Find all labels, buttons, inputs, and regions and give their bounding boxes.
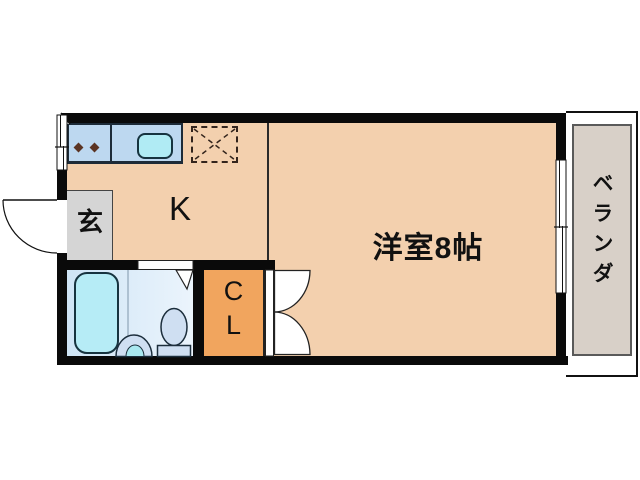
wall-bottom: [57, 356, 568, 365]
wall-interior: [57, 260, 275, 270]
wall-top: [57, 113, 566, 123]
kitchen-label: K: [150, 190, 210, 228]
wall-bathroom-right: [193, 270, 204, 356]
closet-label-line1: C: [204, 274, 263, 308]
entrance-label: 玄: [67, 202, 113, 239]
main-room-label: 洋室8帖: [328, 223, 528, 267]
floor-plan: 玄 K 洋室8帖 C L ベランダ: [0, 0, 640, 480]
kitchen-sink-icon: [137, 133, 173, 159]
wall-left: [57, 113, 67, 365]
kitchen-room-boundary-line: [267, 123, 269, 260]
closet-label-line2: L: [204, 308, 263, 342]
refrigerator-placeholder-icon: [191, 126, 238, 163]
veranda-label: ベランダ: [588, 172, 616, 332]
wall-right: [556, 113, 566, 356]
closet-label: C L: [204, 274, 263, 342]
bathroom-floor: [67, 270, 193, 356]
counter-divider-line: [110, 123, 112, 164]
